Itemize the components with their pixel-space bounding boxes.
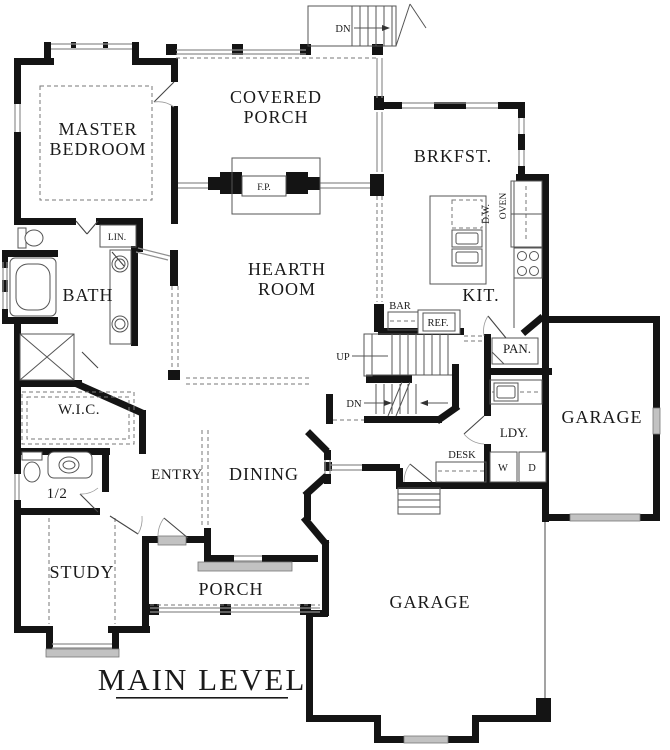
label-desk: DESK bbox=[448, 450, 476, 461]
label-refrigerator: REF. bbox=[427, 318, 448, 329]
label-master-bedroom-2: BEDROOM bbox=[49, 139, 146, 159]
label-covered-porch-2: PORCH bbox=[243, 107, 308, 127]
half-bath-toilet-tank bbox=[22, 452, 42, 460]
dining-window-sill bbox=[198, 562, 292, 571]
title-block: MAIN LEVEL bbox=[98, 662, 307, 699]
plan-title: MAIN LEVEL bbox=[98, 662, 307, 697]
label-linen: LIN. bbox=[108, 233, 126, 243]
label-fireplace: F.P. bbox=[257, 183, 271, 193]
vanity-sink bbox=[112, 256, 128, 272]
label-stairs-down: DN bbox=[346, 399, 362, 410]
label-washer: W bbox=[498, 463, 508, 474]
label-porch: PORCH bbox=[198, 579, 263, 599]
label-hearth-room-2: ROOM bbox=[258, 279, 316, 299]
label-porch-stairs-down: DN bbox=[335, 24, 351, 35]
label-dryer: D bbox=[528, 463, 536, 474]
label-covered-porch-1: COVERED bbox=[230, 87, 322, 107]
label-kitchen: KIT. bbox=[462, 285, 499, 305]
label-bar: BAR bbox=[389, 301, 411, 312]
side-garage-door bbox=[653, 408, 660, 434]
label-breakfast: BRKFST. bbox=[414, 146, 492, 166]
label-garage-main: GARAGE bbox=[390, 592, 471, 612]
label-dishwasher: D.W. bbox=[482, 204, 492, 224]
label-half-bath: 1/2 bbox=[47, 486, 68, 502]
label-laundry: LDY. bbox=[500, 425, 528, 440]
label-garage-single: GARAGE bbox=[562, 407, 643, 427]
label-hearth-room-1: HEARTH bbox=[248, 259, 326, 279]
main-garage-rear-door bbox=[404, 736, 448, 743]
label-pantry: PAN. bbox=[503, 341, 531, 356]
floorplan-sheet: MASTER BEDROOM COVERED PORCH HEARTH ROOM… bbox=[0, 0, 670, 750]
study-bay-apron bbox=[46, 649, 119, 657]
half-bath-toilet bbox=[24, 462, 40, 482]
label-stairs-up: UP bbox=[336, 352, 350, 363]
half-bath-sink bbox=[59, 457, 79, 473]
toilet-bowl bbox=[25, 230, 43, 246]
side-garage-overhead-door bbox=[570, 514, 640, 521]
floorplan-drawing: MASTER BEDROOM COVERED PORCH HEARTH ROOM… bbox=[0, 0, 670, 750]
label-entry: ENTRY bbox=[151, 467, 203, 483]
vanity-sink bbox=[112, 316, 128, 332]
front-door-threshold bbox=[158, 536, 186, 545]
paper-background bbox=[0, 0, 670, 750]
label-wic: W.I.C. bbox=[58, 402, 100, 418]
title-underline bbox=[116, 697, 288, 699]
label-study: STUDY bbox=[49, 562, 114, 582]
label-bath: BATH bbox=[62, 285, 113, 305]
label-dining: DINING bbox=[229, 464, 299, 484]
label-master-bedroom-1: MASTER bbox=[58, 119, 137, 139]
label-oven: OVEN bbox=[499, 193, 509, 220]
